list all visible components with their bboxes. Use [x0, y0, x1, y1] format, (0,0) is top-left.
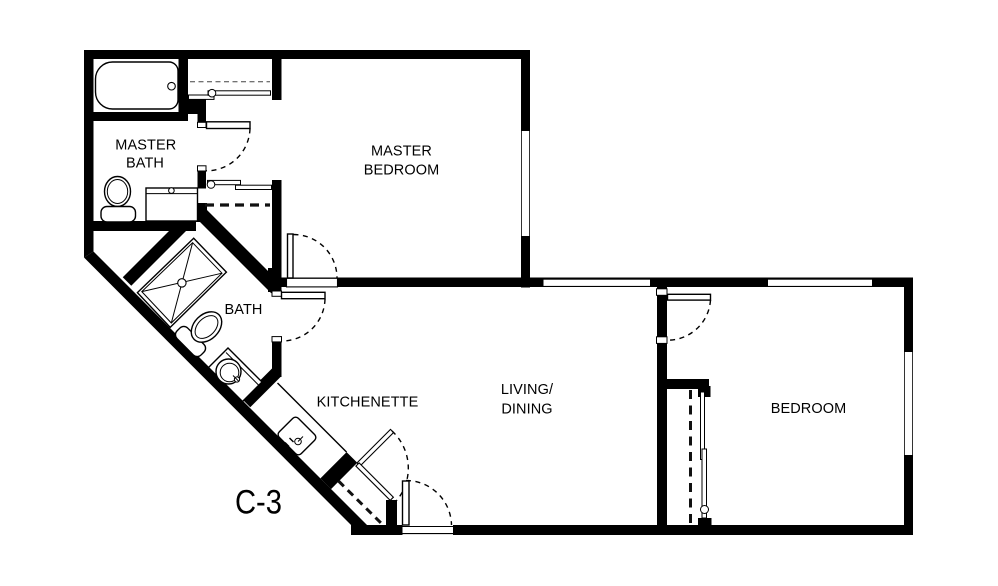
svg-text:MASTER: MASTER [115, 138, 176, 154]
svg-text:BEDROOM: BEDROOM [771, 401, 847, 417]
svg-text:BEDROOM: BEDROOM [364, 163, 440, 179]
svg-text:KITCHENETTE: KITCHENETTE [317, 395, 419, 411]
svg-text:BATH: BATH [225, 302, 263, 318]
svg-text:MASTER: MASTER [371, 144, 432, 160]
svg-text:LIVING/: LIVING/ [501, 382, 554, 398]
svg-text:C-3: C-3 [235, 484, 282, 522]
svg-text:BATH: BATH [126, 156, 164, 172]
svg-text:DINING: DINING [501, 402, 552, 418]
